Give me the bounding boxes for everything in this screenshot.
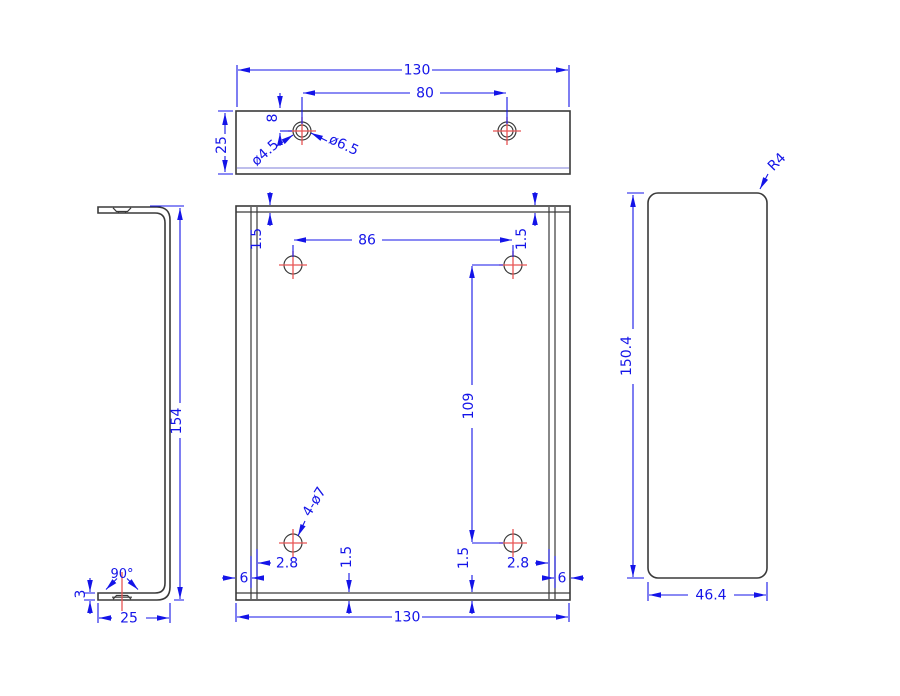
dim-top-depth: 25 xyxy=(214,111,233,174)
dim-side-depth: 25 xyxy=(98,603,170,627)
callout-bore-diameter: ø6.5 xyxy=(311,132,361,160)
callout-corner-radius: R4 xyxy=(760,150,789,189)
end-view-outline xyxy=(648,193,767,578)
dim-front-width: 130 xyxy=(236,603,569,626)
dim-top-width: 130 xyxy=(237,63,569,108)
dim-text: 86 xyxy=(358,233,376,249)
dim-flange-left: 6 xyxy=(222,556,264,588)
dim-end-height: 150.4 xyxy=(619,193,644,578)
callout-csk-diameter: ø4.5 xyxy=(249,135,293,169)
dim-thickness-bottom-right: 1.5 xyxy=(456,547,472,614)
top-view: 130 80 25 8 ø4.5 ø6.5 xyxy=(214,63,570,175)
dim-hole-edge-left: 2.8 xyxy=(257,549,298,577)
end-view: 150.4 46.4 R4 xyxy=(619,150,789,604)
callout-text: ø6.5 xyxy=(326,132,361,160)
callout-text: 4-ø7 xyxy=(299,484,329,519)
callout-text: ø4.5 xyxy=(249,137,283,170)
front-view: 1.5 1.5 86 109 1.5 1.5 xyxy=(222,192,584,626)
dim-text: 2.8 xyxy=(507,556,529,572)
dim-text: 1.5 xyxy=(456,547,472,569)
dim-thickness-bottom-left: 1.5 xyxy=(339,546,355,614)
dim-flange-right: 6 xyxy=(542,556,584,588)
dim-top-hole-spacing: 80 xyxy=(302,86,507,125)
front-hole-lower-left xyxy=(279,529,307,557)
dim-side-thickness: 3 xyxy=(73,578,95,614)
side-view-outline xyxy=(98,207,170,600)
dim-text: 130 xyxy=(394,610,421,626)
dim-text: 150.4 xyxy=(619,336,635,376)
dim-text: 2.8 xyxy=(276,556,298,572)
callout-text: R4 xyxy=(765,150,790,175)
dim-side-height: 154 xyxy=(150,206,185,600)
dim-text: 8 xyxy=(265,114,281,123)
dim-text: 154 xyxy=(169,408,185,435)
front-hole-lower-right xyxy=(499,529,527,557)
dim-text: 6 xyxy=(558,571,567,587)
top-view-outline xyxy=(236,111,570,174)
drawing-svg: 130 80 25 8 ø4.5 ø6.5 xyxy=(0,0,900,696)
dim-text: 1.5 xyxy=(514,228,530,250)
dim-text: 25 xyxy=(214,136,230,154)
cad-drawing: 130 80 25 8 ø4.5 ø6.5 xyxy=(0,0,900,696)
dim-hole-spacing-x: 86 xyxy=(293,233,513,258)
front-view-fold-lines-horizontal xyxy=(236,212,570,593)
dim-hole-spacing-y: 109 xyxy=(461,265,503,543)
callout-holes: 4-ø7 xyxy=(298,484,330,536)
dim-text: 130 xyxy=(404,63,431,79)
dim-text: 3 xyxy=(73,590,89,599)
side-view: 90° 154 25 3 xyxy=(73,206,185,627)
dim-text: 1.5 xyxy=(249,228,265,250)
dim-text: 46.4 xyxy=(695,588,726,604)
dim-text: 90° xyxy=(110,567,133,582)
dim-text: 80 xyxy=(416,86,434,102)
dim-thickness-top-right: 1.5 xyxy=(514,192,535,250)
dim-text: 1.5 xyxy=(339,546,355,568)
dim-thickness-top-left: 1.5 xyxy=(249,192,270,250)
dim-end-width: 46.4 xyxy=(648,582,767,604)
front-view-fold-lines-vertical xyxy=(251,207,555,599)
dim-text: 109 xyxy=(461,393,477,420)
dim-text: 25 xyxy=(120,611,138,627)
dim-text: 6 xyxy=(240,571,249,587)
